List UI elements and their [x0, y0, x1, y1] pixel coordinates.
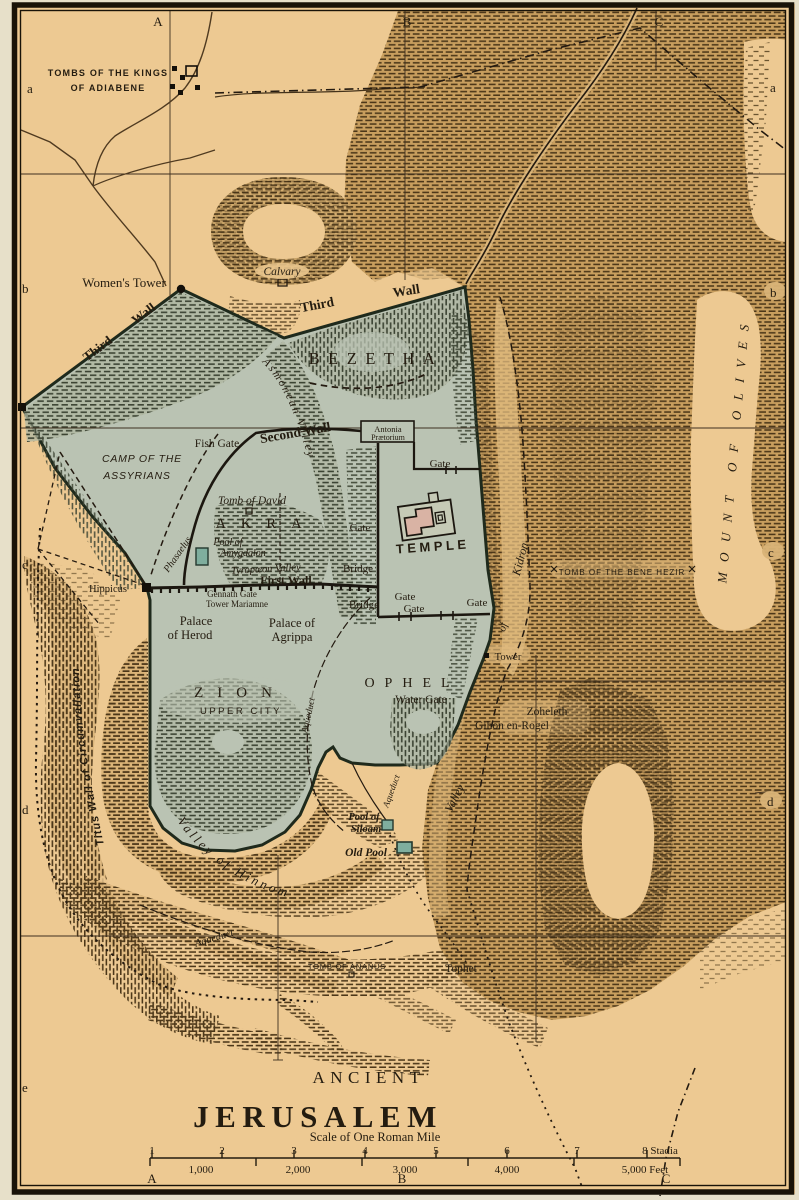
svg-text:C: C — [655, 14, 664, 29]
svg-text:Scale of One Roman Mile: Scale of One Roman Mile — [310, 1130, 441, 1144]
svg-text:of Herod: of Herod — [168, 628, 214, 642]
svg-text:Pool of: Pool of — [348, 812, 381, 823]
svg-text:2,000: 2,000 — [286, 1164, 311, 1176]
svg-text:TOMB OF THE BENE HEZIR: TOMB OF THE BENE HEZIR — [559, 568, 686, 577]
svg-text:4,000: 4,000 — [495, 1164, 520, 1176]
svg-text:Tophet: Tophet — [445, 963, 478, 975]
svg-text:Tower Mariamne: Tower Mariamne — [206, 599, 268, 609]
svg-text:ZION: ZION — [194, 685, 286, 701]
svg-text:Gihon en-Rogel: Gihon en-Rogel — [475, 720, 549, 732]
svg-text:d: d — [22, 802, 29, 817]
svg-text:OPHEL: OPHEL — [364, 676, 459, 691]
svg-text:a: a — [27, 81, 33, 96]
svg-text:C: C — [662, 1171, 671, 1186]
svg-text:4: 4 — [362, 1145, 368, 1157]
svg-text:OF ADIABENE: OF ADIABENE — [71, 83, 146, 93]
svg-text:Old Pool: Old Pool — [345, 847, 388, 859]
svg-text:Amygdalon: Amygdalon — [219, 548, 266, 559]
svg-text:Gate: Gate — [350, 522, 371, 534]
svg-text:BEZETHA: BEZETHA — [309, 349, 444, 368]
svg-text:Tower: Tower — [495, 652, 522, 663]
svg-text:e: e — [22, 1080, 28, 1095]
svg-text:ANCIENT: ANCIENT — [312, 1068, 425, 1087]
svg-text:b: b — [22, 281, 29, 296]
svg-text:c: c — [768, 545, 774, 560]
svg-text:CAMP OF THE: CAMP OF THE — [102, 453, 182, 465]
svg-text:A: A — [153, 14, 163, 29]
svg-text:UPPER CITY: UPPER CITY — [200, 706, 282, 717]
svg-text:Gate: Gate — [395, 591, 416, 603]
svg-text:7: 7 — [574, 1145, 580, 1157]
svg-text:Fish Gate: Fish Gate — [195, 438, 239, 450]
svg-text:b: b — [770, 285, 777, 300]
svg-text:6: 6 — [504, 1145, 510, 1157]
svg-text:Gate: Gate — [467, 597, 488, 609]
svg-text:A: A — [147, 1171, 157, 1186]
svg-text:JERUSALEM: JERUSALEM — [193, 1099, 443, 1134]
svg-text:c: c — [22, 557, 28, 572]
svg-text:Palace: Palace — [180, 614, 213, 628]
svg-text:AKRA: AKRA — [215, 516, 316, 532]
svg-text:Palace of: Palace of — [269, 616, 316, 630]
svg-text:Gennath Gate: Gennath Gate — [207, 589, 257, 599]
svg-text:Gate: Gate — [430, 458, 451, 470]
svg-text:B: B — [403, 14, 412, 29]
svg-text:Bridge: Bridge — [349, 599, 379, 611]
svg-text:Zoheleth: Zoheleth — [527, 706, 568, 718]
svg-text:Bridge: Bridge — [343, 563, 373, 575]
svg-text:a: a — [770, 80, 776, 95]
svg-text:Siloam: Siloam — [351, 824, 381, 835]
svg-text:Agrippa: Agrippa — [272, 630, 313, 644]
svg-text:5: 5 — [433, 1145, 439, 1157]
svg-text:1,000: 1,000 — [189, 1164, 214, 1176]
svg-text:Gate: Gate — [404, 603, 425, 615]
svg-text:Water Gate: Water Gate — [395, 694, 447, 706]
svg-text:First Wall: First Wall — [260, 573, 312, 587]
svg-text:Tomb of David: Tomb of David — [218, 495, 286, 507]
svg-text:3: 3 — [291, 1145, 297, 1157]
svg-text:Women's Tower: Women's Tower — [82, 275, 166, 290]
svg-text:TOMBS OF THE KINGS: TOMBS OF THE KINGS — [48, 68, 168, 78]
svg-text:1: 1 — [149, 1145, 155, 1157]
svg-text:2: 2 — [219, 1145, 225, 1157]
svg-text:ASSYRIANS: ASSYRIANS — [102, 470, 170, 482]
svg-text:TOMB OF ANANUS: TOMB OF ANANUS — [308, 962, 386, 971]
svg-text:Hippicus: Hippicus — [89, 584, 127, 595]
svg-text:Calvary: Calvary — [263, 266, 301, 278]
svg-text:Prætorium: Prætorium — [371, 433, 406, 442]
svg-text:Pool of: Pool of — [212, 537, 243, 548]
svg-text:8 Stadia: 8 Stadia — [642, 1145, 678, 1157]
svg-text:d: d — [767, 794, 774, 809]
svg-text:B: B — [398, 1171, 407, 1186]
